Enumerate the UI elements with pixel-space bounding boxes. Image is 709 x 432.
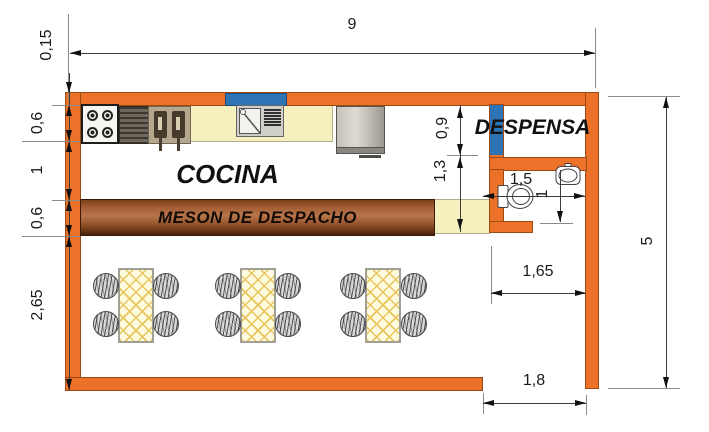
refrigerator-icon xyxy=(336,106,385,154)
extension-line xyxy=(595,28,596,88)
washbasin-icon xyxy=(555,163,581,186)
dining-table xyxy=(365,268,401,343)
dimension-line xyxy=(70,53,595,54)
chair-icon xyxy=(153,311,179,337)
chair-icon xyxy=(215,311,241,337)
stove-icon xyxy=(81,104,119,144)
chair-icon xyxy=(93,311,119,337)
despensa-label: DESPENSA xyxy=(465,116,600,140)
chair-icon xyxy=(340,273,366,299)
floor-plan: MESON DE DESPACHO COCINA DESPENSA 9 0,15 xyxy=(0,0,709,432)
dim-total-height: 5 xyxy=(639,211,657,271)
chair-icon xyxy=(401,273,427,299)
wall-bottom xyxy=(66,378,482,390)
dining-table xyxy=(118,268,154,343)
cocina-label: COCINA xyxy=(150,159,305,190)
dim-total-width: 9 xyxy=(340,16,364,34)
meson-label: MESON DE DESPACHO xyxy=(158,208,357,228)
grill-cabinet-icon xyxy=(119,106,149,144)
wall-top xyxy=(66,93,598,105)
chair-icon xyxy=(275,273,301,299)
meson-counter: MESON DE DESPACHO xyxy=(80,199,435,236)
chair-icon xyxy=(275,311,301,337)
chair-icon xyxy=(215,273,241,299)
chair-icon xyxy=(340,311,366,337)
dim-meson-depth: 0,6 xyxy=(29,188,47,248)
sink-icon xyxy=(236,105,284,138)
chair-icon xyxy=(93,273,119,299)
dining-table xyxy=(240,268,276,343)
dim-entrance-width: 1,8 xyxy=(510,372,558,390)
dim-door-to-meson: 1,3 xyxy=(432,141,450,201)
dim-dining-depth: 2,65 xyxy=(29,275,47,335)
fryer-station-icon xyxy=(148,106,191,144)
wall-bathroom-foot xyxy=(490,222,532,232)
dim-wall-thickness: 0,15 xyxy=(38,15,56,75)
dim-bathroom-to-wall: 1,65 xyxy=(514,263,562,281)
chair-icon xyxy=(401,311,427,337)
chair-icon xyxy=(153,273,179,299)
dim-bathroom-depth: 1 xyxy=(534,164,552,224)
